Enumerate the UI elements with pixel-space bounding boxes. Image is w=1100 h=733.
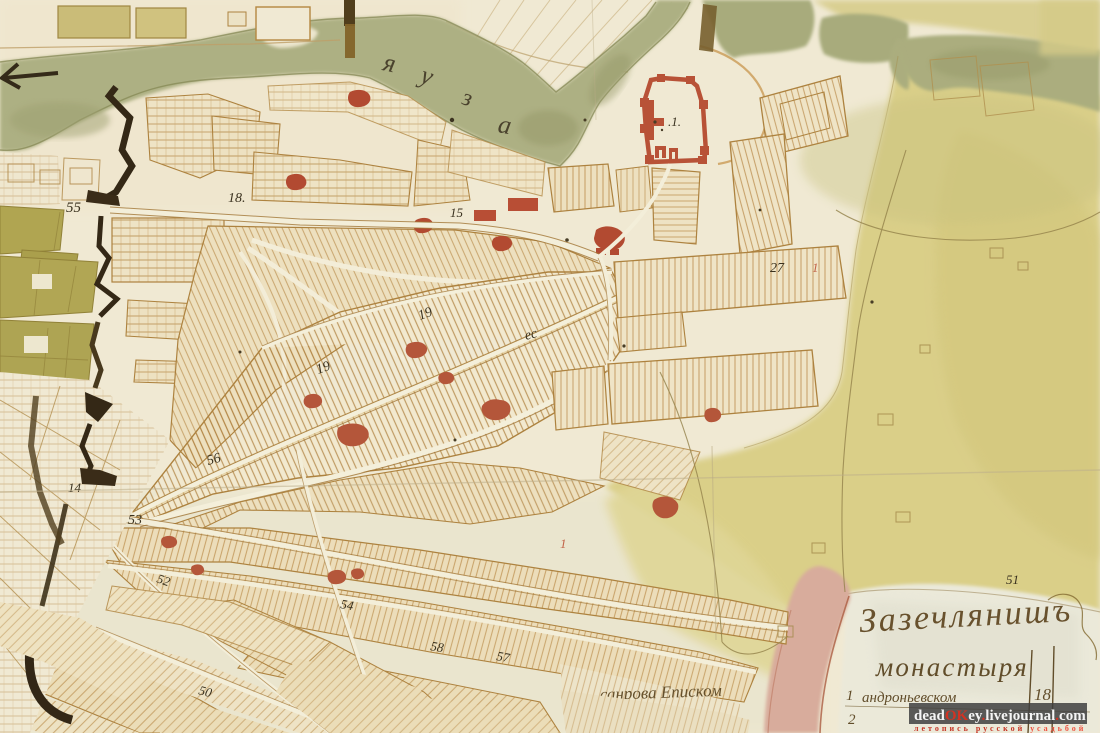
svg-text:летопись русской усадьбой: летопись русской усадьбой bbox=[914, 724, 1086, 733]
svg-text:deadOKey.livejournal.com: deadOKey.livejournal.com bbox=[914, 708, 1086, 724]
